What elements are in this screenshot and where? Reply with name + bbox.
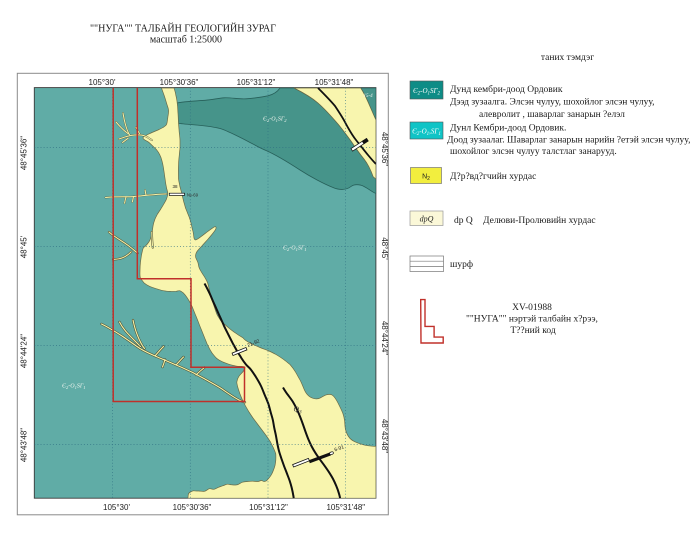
svg-text:Є2-O1ЅГ1: Є2-O1ЅГ1 <box>62 384 86 391</box>
svg-text:шохойлог элсэн чулуу талстлаг: шохойлог элсэн чулуу талстлаг занарууд. <box>450 146 617 157</box>
svg-text:алевролит , шаварлаг занарын ?: алевролит , шаварлаг занарын ?елэл <box>479 110 625 120</box>
svg-text:Дунд кембри-доод Ордовик: Дунд кембри-доод Ордовик <box>450 84 563 95</box>
svg-text:""НУГА"" нэртэй талбайн х?рээ,: ""НУГА"" нэртэй талбайн х?рээ, <box>466 314 598 325</box>
svg-text:Є2-O1ЅГ1: Є2-O1ЅГ1 <box>283 246 307 253</box>
svg-text:""НУГА"" ТАЛБАЙН ГЕОЛОГИЙН ЗУР: ""НУГА"" ТАЛБАЙН ГЕОЛОГИЙН ЗУРАГ <box>90 23 276 35</box>
svg-text:48°43'48": 48°43'48" <box>20 428 29 462</box>
svg-text:15-4: 15-4 <box>364 94 374 99</box>
svg-text:48°45': 48°45' <box>380 237 389 260</box>
svg-text:38: 38 <box>172 184 178 189</box>
svg-text:48°45'36": 48°45'36" <box>20 136 29 170</box>
svg-text:dpQ: dpQ <box>420 215 434 224</box>
svg-text:48°45': 48°45' <box>20 235 29 258</box>
svg-text:Делюви-Пролювийн хурдас: Делюви-Пролювийн хурдас <box>483 215 596 226</box>
svg-text:48°43'48": 48°43'48" <box>380 419 389 453</box>
svg-text:105°30'36": 105°30'36" <box>173 503 212 512</box>
svg-text:шурф: шурф <box>450 259 473 270</box>
svg-text:105°30': 105°30' <box>103 503 130 512</box>
svg-text:Т??ний код: Т??ний код <box>510 325 555 336</box>
svg-text:dp Q: dp Q <box>454 216 473 226</box>
svg-text:Дунл Кембри-доод Ордовик.: Дунл Кембри-доод Ордовик. <box>450 123 566 134</box>
svg-text:Д?р?вд?гчийн хурдас: Д?р?вд?гчийн хурдас <box>450 171 536 182</box>
svg-text:Дээд зузаалга. Элсэн чулуу, шо: Дээд зузаалга. Элсэн чулуу, шохойлог элс… <box>450 97 655 108</box>
svg-text:105°31'48": 105°31'48" <box>326 503 365 512</box>
svg-text:48°44'24": 48°44'24" <box>20 334 29 368</box>
svg-text:105°31'12": 105°31'12" <box>249 503 288 512</box>
svg-text:№-69: №-69 <box>187 192 199 197</box>
svg-text:105°31'48": 105°31'48" <box>315 78 354 87</box>
svg-text:Є2-O1ЅГ2: Є2-O1ЅГ2 <box>263 117 287 124</box>
svg-text:XV-01988: XV-01988 <box>512 303 552 313</box>
svg-text:масштаб 1:25000: масштаб 1:25000 <box>150 35 222 46</box>
svg-text:48°45'36": 48°45'36" <box>380 132 389 166</box>
svg-text:105°30'36": 105°30'36" <box>160 78 199 87</box>
svg-text:таних тэмдэг: таних тэмдэг <box>541 53 594 63</box>
svg-text:48°44'24": 48°44'24" <box>380 321 389 355</box>
svg-text:105°31'12": 105°31'12" <box>237 78 276 87</box>
svg-text:105°30': 105°30' <box>89 78 116 87</box>
svg-text:Доод зузаалаг. Шаварлаг занары: Доод зузаалаг. Шаварлаг занарын нарийн ?… <box>447 135 690 146</box>
